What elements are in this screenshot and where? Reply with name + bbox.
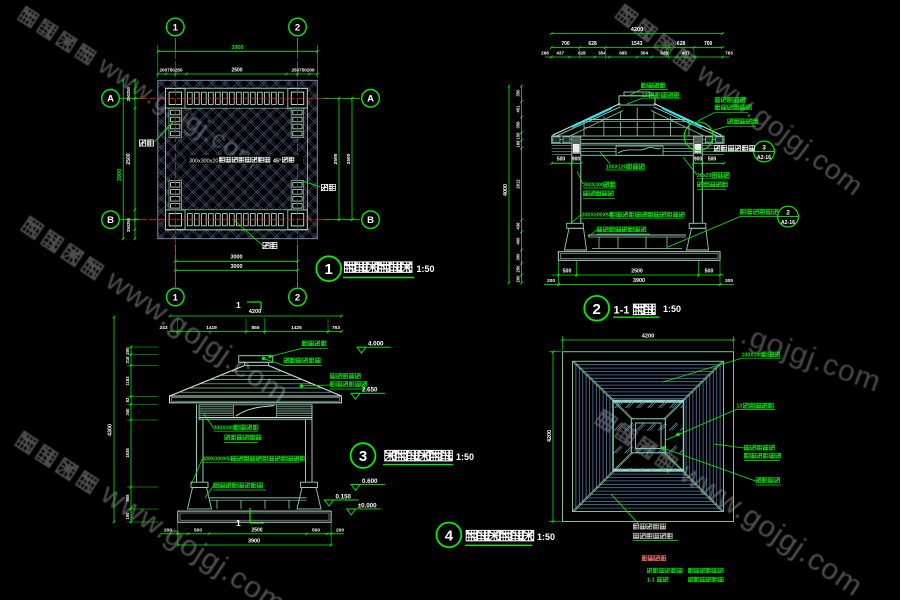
svg-text:500: 500 — [312, 527, 320, 533]
svg-text:2500: 2500 — [251, 527, 262, 533]
svg-text:20x20: 20x20 — [697, 173, 712, 179]
svg-text:628: 628 — [677, 41, 686, 47]
svg-text:4200: 4200 — [547, 430, 553, 442]
svg-text:268: 268 — [541, 51, 549, 56]
svg-text:3000: 3000 — [231, 255, 243, 261]
svg-text:300X300X50: 300X300X50 — [582, 212, 612, 218]
svg-text:4000: 4000 — [503, 184, 509, 196]
svg-text:1425: 1425 — [291, 325, 302, 331]
svg-text:3900: 3900 — [231, 45, 243, 51]
svg-text:2: 2 — [295, 292, 300, 303]
svg-text:508: 508 — [125, 494, 130, 502]
svg-text:1-1: 1-1 — [614, 305, 630, 317]
svg-text:250: 250 — [516, 265, 521, 273]
svg-text:900: 900 — [572, 157, 581, 163]
svg-text:200: 200 — [336, 527, 344, 533]
svg-text:3900: 3900 — [117, 169, 123, 181]
svg-text:1: 1 — [173, 292, 179, 303]
svg-text:358: 358 — [516, 121, 521, 129]
svg-text:437: 437 — [682, 51, 690, 56]
svg-text:300X300X50: 300X300X50 — [202, 456, 232, 462]
svg-text:628: 628 — [578, 51, 586, 56]
svg-text:300x300x20: 300x300x20 — [189, 158, 218, 164]
svg-text:A: A — [107, 94, 114, 105]
svg-text:1: 1 — [325, 261, 333, 278]
svg-text:4.000: 4.000 — [368, 341, 384, 348]
svg-text:100X100: 100X100 — [742, 352, 763, 358]
svg-text:100X120: 100X120 — [606, 164, 627, 170]
svg-text:13: 13 — [736, 404, 742, 410]
svg-text:500: 500 — [708, 157, 717, 163]
svg-text:0.150: 0.150 — [336, 493, 352, 500]
svg-text:83: 83 — [125, 397, 130, 402]
svg-text:628: 628 — [588, 41, 597, 47]
svg-text:2500: 2500 — [126, 153, 132, 164]
svg-text:1-1: 1-1 — [647, 578, 655, 584]
svg-text:3: 3 — [762, 145, 766, 152]
svg-text:437: 437 — [556, 51, 564, 56]
svg-text:318: 318 — [125, 356, 130, 364]
svg-text:2500: 2500 — [231, 67, 242, 73]
svg-text:250250: 250250 — [126, 217, 131, 232]
svg-text:354: 354 — [598, 51, 606, 56]
svg-text:2500: 2500 — [346, 153, 352, 164]
svg-text:4200: 4200 — [631, 27, 643, 33]
svg-text:451: 451 — [516, 105, 521, 113]
svg-text:0.600: 0.600 — [362, 478, 378, 485]
svg-text:4200: 4200 — [642, 333, 654, 339]
svg-text:250250: 250250 — [126, 86, 131, 101]
svg-text:A2-16: A2-16 — [781, 220, 795, 226]
svg-text:354: 354 — [640, 51, 648, 56]
svg-text:150: 150 — [125, 512, 130, 520]
svg-text:1543: 1543 — [631, 41, 642, 47]
svg-text:763: 763 — [332, 325, 340, 331]
svg-text:763: 763 — [725, 51, 733, 56]
svg-text:250750200: 250750200 — [292, 67, 315, 72]
svg-text:200: 200 — [516, 275, 521, 283]
svg-text:1:50: 1:50 — [456, 452, 474, 462]
svg-text:200: 200 — [125, 347, 130, 355]
svg-text:±0.000: ±0.000 — [358, 502, 377, 509]
svg-text:900: 900 — [694, 157, 703, 163]
svg-text:3900: 3900 — [633, 278, 645, 284]
svg-text:2500: 2500 — [631, 268, 643, 274]
svg-text:243: 243 — [159, 325, 167, 331]
svg-text:3000: 3000 — [231, 264, 243, 270]
svg-text:1: 1 — [236, 518, 241, 528]
svg-text:438: 438 — [516, 222, 521, 230]
svg-text:2812: 2812 — [516, 179, 521, 189]
svg-text:700: 700 — [561, 41, 570, 47]
svg-text:4300: 4300 — [108, 424, 114, 436]
svg-text:500: 500 — [557, 157, 566, 163]
svg-text:1638: 1638 — [125, 448, 130, 458]
svg-text:2500: 2500 — [333, 153, 339, 164]
svg-text:1:50: 1:50 — [417, 264, 435, 274]
svg-text:150: 150 — [516, 132, 521, 140]
svg-text:A2-16: A2-16 — [757, 155, 771, 161]
svg-text:2: 2 — [295, 22, 300, 33]
svg-text:500: 500 — [705, 268, 714, 274]
svg-text:4200: 4200 — [249, 309, 261, 315]
svg-text:500: 500 — [563, 268, 572, 274]
svg-text:200750250: 200750250 — [160, 67, 183, 72]
svg-text:300X300: 300X300 — [214, 425, 235, 431]
svg-text:1: 1 — [236, 300, 241, 310]
svg-text:45°: 45° — [273, 158, 281, 164]
svg-text:3900: 3900 — [248, 539, 260, 545]
svg-text:340: 340 — [125, 408, 130, 416]
svg-text:B: B — [367, 215, 374, 226]
svg-text:A: A — [367, 94, 374, 105]
svg-text:350: 350 — [516, 89, 521, 97]
svg-text:1:50: 1:50 — [663, 304, 681, 314]
svg-text:300: 300 — [725, 278, 733, 284]
svg-text:2: 2 — [593, 301, 601, 318]
svg-text:628: 628 — [660, 51, 668, 56]
svg-text:1:50: 1:50 — [537, 532, 555, 542]
svg-text:200: 200 — [164, 527, 172, 533]
svg-text:400: 400 — [516, 237, 521, 245]
svg-text:3: 3 — [359, 448, 367, 465]
svg-text:1: 1 — [173, 22, 179, 33]
svg-text:1419: 1419 — [206, 325, 217, 331]
svg-text:168: 168 — [516, 140, 521, 148]
svg-text:855: 855 — [251, 325, 259, 331]
svg-text:4: 4 — [445, 527, 454, 544]
svg-text:13: 13 — [642, 93, 648, 99]
svg-text:2: 2 — [786, 210, 790, 217]
svg-text:1183: 1183 — [125, 376, 130, 386]
svg-text:300: 300 — [516, 253, 521, 261]
svg-text:2.650: 2.650 — [362, 387, 378, 394]
svg-text:685: 685 — [619, 51, 627, 56]
svg-text:500: 500 — [194, 527, 202, 533]
svg-text:700: 700 — [704, 41, 713, 47]
svg-text:B: B — [107, 215, 114, 226]
svg-text:200: 200 — [547, 278, 555, 284]
svg-text:300X300: 300X300 — [583, 182, 604, 188]
